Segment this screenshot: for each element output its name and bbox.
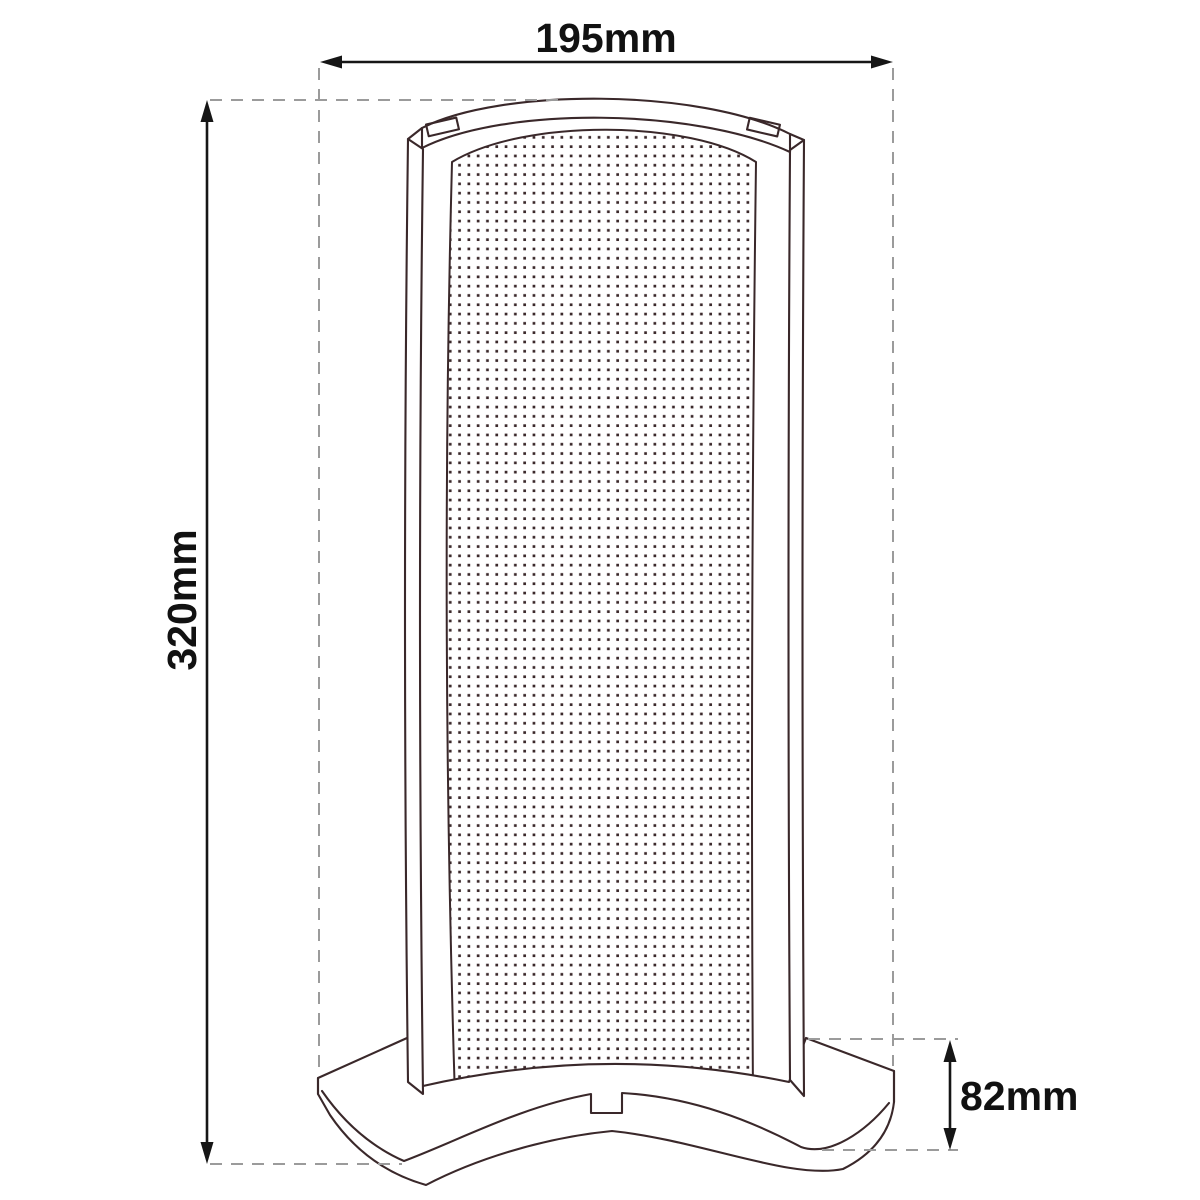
dimension-height: 320mm <box>159 100 214 1164</box>
arrow-down-icon <box>944 1128 957 1150</box>
depth-dimension-label: 82mm <box>960 1073 1079 1119</box>
width-dimension-label: 195mm <box>535 15 676 61</box>
arrow-up-icon <box>944 1040 957 1062</box>
left-side-rail <box>405 139 423 1094</box>
arrow-down-icon <box>201 1142 214 1164</box>
arrow-up-icon <box>201 100 214 122</box>
height-dimension-label: 320mm <box>159 529 205 670</box>
technical-dimension-drawing: 195mm 320mm 82mm <box>0 0 1200 1200</box>
arrow-right-icon <box>871 56 893 69</box>
right-side-rail <box>789 140 805 1096</box>
perforated-panel <box>447 130 756 1098</box>
dimension-width: 195mm <box>320 15 893 69</box>
arrow-left-icon <box>320 56 342 69</box>
dimension-depth: 82mm <box>944 1040 1079 1150</box>
dimension-drawing-svg: 195mm 320mm 82mm <box>0 0 1200 1200</box>
